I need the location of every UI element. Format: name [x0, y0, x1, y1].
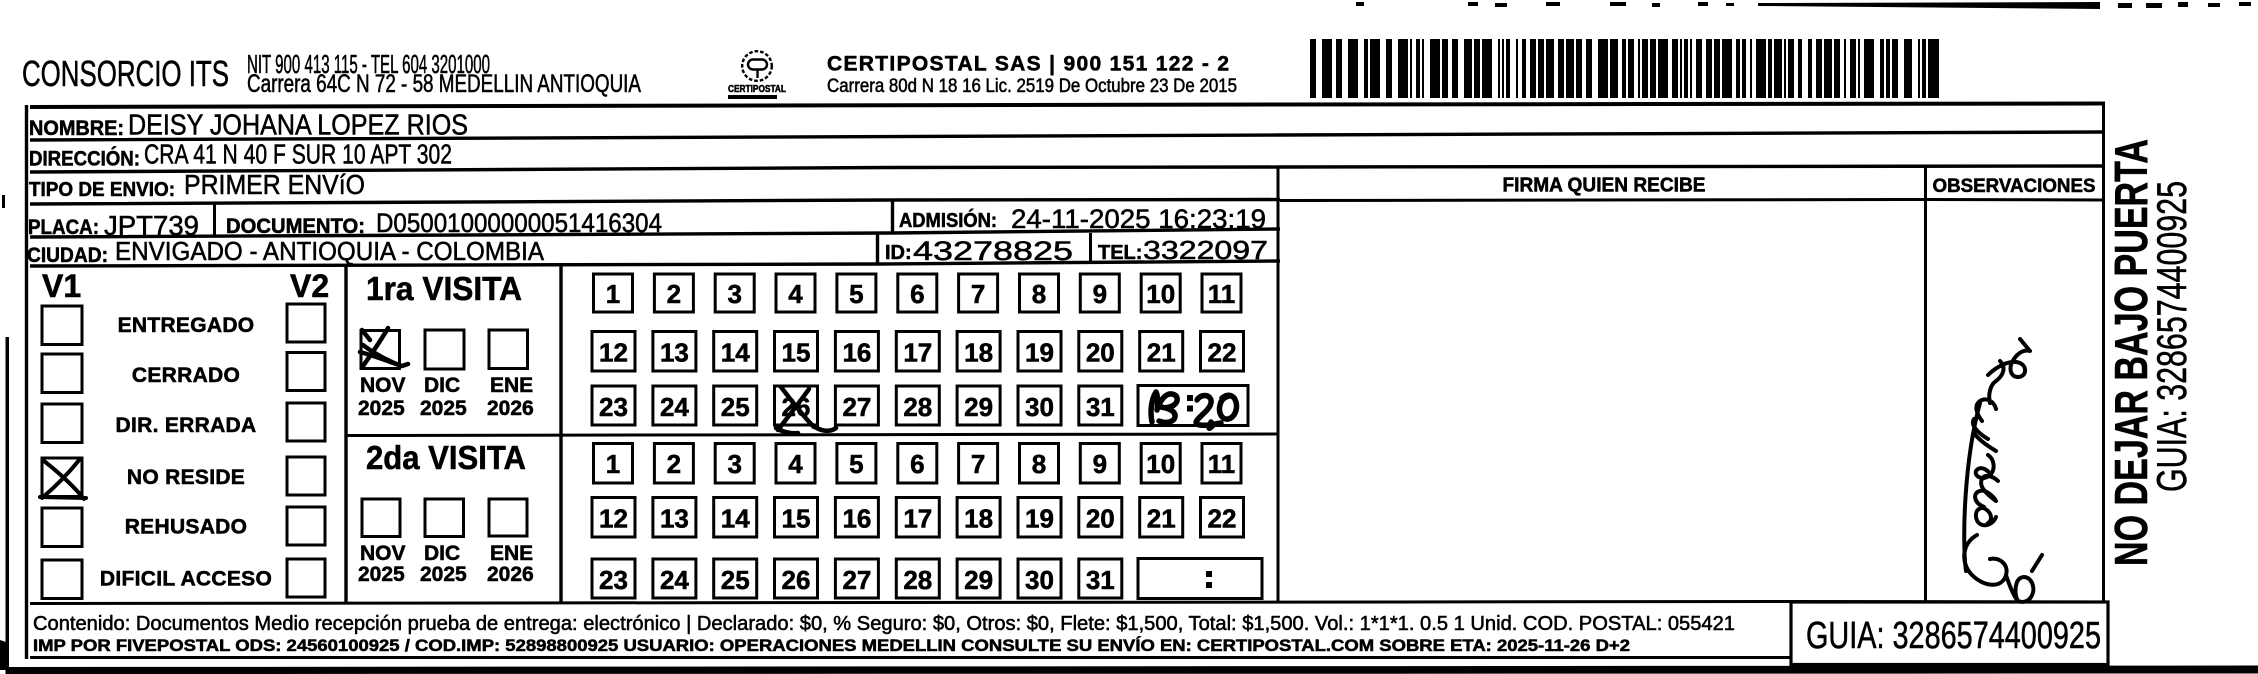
- svg-text:8: 8: [1032, 279, 1046, 309]
- svg-text:13: 13: [660, 338, 689, 368]
- svg-text:2025: 2025: [358, 397, 405, 420]
- svg-text:V1: V1: [42, 268, 81, 304]
- svg-text:ENE: ENE: [490, 374, 533, 397]
- svg-text:2026: 2026: [487, 397, 534, 420]
- svg-text:25: 25: [721, 565, 750, 595]
- svg-text:7: 7: [971, 449, 985, 479]
- svg-text:18: 18: [964, 504, 993, 534]
- svg-text:8: 8: [1032, 449, 1046, 479]
- svg-text:27: 27: [842, 392, 871, 422]
- svg-text:2025: 2025: [420, 563, 467, 586]
- svg-text:1: 1: [606, 279, 620, 309]
- svg-text:DIRECCIÓN:: DIRECCIÓN:: [29, 147, 140, 171]
- svg-text:18: 18: [964, 338, 993, 368]
- svg-text:DIR. ERRADA: DIR. ERRADA: [116, 414, 257, 437]
- svg-text:5: 5: [849, 279, 863, 309]
- svg-text:24: 24: [660, 392, 689, 422]
- svg-text:9: 9: [1093, 279, 1107, 309]
- svg-text:GUIA: 3286574400925: GUIA: 3286574400925: [1806, 615, 2101, 657]
- svg-text:21: 21: [1147, 338, 1176, 368]
- svg-text:PRIMER ENVíO: PRIMER ENVíO: [184, 169, 365, 200]
- svg-text:ENE: ENE: [490, 542, 533, 565]
- svg-text:REHUSADO: REHUSADO: [125, 516, 248, 539]
- svg-text:2025: 2025: [420, 397, 467, 420]
- svg-text:27: 27: [842, 565, 871, 595]
- svg-text:2: 2: [667, 279, 681, 309]
- svg-text:CERRADO: CERRADO: [132, 364, 240, 387]
- svg-text:14: 14: [721, 504, 750, 534]
- svg-text:13: 13: [660, 504, 689, 534]
- svg-text:3: 3: [727, 449, 741, 479]
- svg-text:20: 20: [1086, 338, 1115, 368]
- svg-text:ADMISIÓN:: ADMISIÓN:: [899, 208, 997, 232]
- svg-text:19: 19: [1025, 338, 1054, 368]
- svg-text:23: 23: [599, 392, 628, 422]
- svg-text:7: 7: [971, 279, 985, 309]
- svg-text:11: 11: [1208, 279, 1236, 309]
- svg-text:1: 1: [606, 449, 620, 479]
- svg-text:2025: 2025: [358, 563, 405, 586]
- svg-text:29: 29: [964, 392, 993, 422]
- svg-text:NO RESIDE: NO RESIDE: [127, 466, 245, 489]
- svg-text:24: 24: [660, 565, 689, 595]
- svg-text:9: 9: [1093, 449, 1107, 479]
- svg-text:4: 4: [788, 449, 803, 479]
- svg-text:10: 10: [1146, 279, 1175, 309]
- svg-text:21: 21: [1147, 504, 1176, 534]
- svg-text:17: 17: [903, 504, 932, 534]
- svg-text:26: 26: [782, 565, 811, 595]
- svg-text:CERTIPOSTAL SAS | 900 151 122: CERTIPOSTAL SAS | 900 151 122 - 2: [827, 53, 1229, 76]
- svg-text:24-11-2025 16:23:19: 24-11-2025 16:23:19: [1011, 204, 1266, 234]
- svg-text:11: 11: [1208, 449, 1236, 479]
- svg-text:DIC: DIC: [424, 374, 460, 397]
- svg-text:DIC: DIC: [424, 542, 460, 565]
- svg-text:16: 16: [842, 504, 871, 534]
- svg-text:2da VISITA: 2da VISITA: [366, 439, 526, 476]
- svg-text:30: 30: [1025, 565, 1054, 595]
- svg-text:22: 22: [1208, 504, 1237, 534]
- svg-text:30: 30: [1025, 392, 1054, 422]
- svg-text:43278825: 43278825: [913, 236, 1073, 266]
- svg-text:DOCUMENTO:: DOCUMENTO:: [226, 215, 365, 238]
- svg-text:CRA 41 N 40 F SUR 10 APT 302: CRA 41 N 40 F SUR 10 APT 302: [144, 139, 452, 170]
- svg-text:2: 2: [667, 449, 681, 479]
- svg-text:31: 31: [1086, 392, 1115, 422]
- svg-text:15: 15: [782, 338, 811, 368]
- svg-text:ID:: ID:: [885, 242, 912, 264]
- svg-text:3322097: 3322097: [1143, 235, 1268, 265]
- svg-text:GUIA: 3286574400925: GUIA: 3286574400925: [2148, 181, 2195, 492]
- svg-text:TIPO DE ENVIO:: TIPO DE ENVIO:: [29, 179, 175, 201]
- svg-text:NOMBRE:: NOMBRE:: [29, 117, 124, 140]
- svg-text:29: 29: [964, 565, 993, 595]
- svg-text:19: 19: [1025, 504, 1054, 534]
- svg-text:FIRMA QUIEN RECIBE: FIRMA QUIEN RECIBE: [1503, 175, 1706, 197]
- svg-text:CONSORCIO ITS: CONSORCIO ITS: [22, 53, 229, 94]
- svg-text:12: 12: [599, 504, 628, 534]
- svg-text:25: 25: [721, 392, 750, 422]
- svg-text:5: 5: [849, 449, 863, 479]
- svg-text:CERTIPOSTAL: CERTIPOSTAL: [728, 83, 786, 95]
- svg-text:2026: 2026: [487, 563, 534, 586]
- svg-text:28: 28: [903, 565, 932, 595]
- svg-text:1ra VISITA: 1ra VISITA: [366, 270, 522, 307]
- svg-text:15: 15: [782, 504, 811, 534]
- svg-text:CIUDAD:: CIUDAD:: [27, 244, 108, 267]
- svg-text:22: 22: [1208, 338, 1237, 368]
- svg-text:NOV: NOV: [360, 542, 406, 565]
- svg-text:14: 14: [721, 338, 750, 368]
- svg-text:31: 31: [1086, 565, 1115, 595]
- svg-text:DIFICIL ACCESO: DIFICIL ACCESO: [100, 568, 272, 591]
- svg-text:12: 12: [599, 338, 628, 368]
- svg-text:17: 17: [903, 338, 932, 368]
- svg-text:IMP POR FIVEPOSTAL ODS: 245601: IMP POR FIVEPOSTAL ODS: 24560100925 / CO…: [33, 636, 1630, 655]
- svg-text:ENVIGADO - ANTIOQUIA - COLOMBI: ENVIGADO - ANTIOQUIA - COLOMBIA: [115, 236, 545, 266]
- svg-text:Carrera 80d N 18 16 Lic. 2519: Carrera 80d N 18 16 Lic. 2519 De Octubre…: [827, 76, 1237, 97]
- svg-text:DEISY JOHANA LOPEZ RIOS: DEISY JOHANA LOPEZ RIOS: [128, 110, 468, 142]
- svg-text:6: 6: [910, 449, 924, 479]
- svg-text:6: 6: [910, 279, 924, 309]
- svg-text:28: 28: [903, 392, 932, 422]
- svg-text:PLACA:: PLACA:: [28, 216, 99, 239]
- svg-text:20: 20: [1086, 504, 1115, 534]
- svg-text:OBSERVACIONES: OBSERVACIONES: [1933, 176, 2096, 197]
- svg-text:4: 4: [788, 279, 803, 309]
- svg-text:Carrera 64C N 72 - 58 MEDELLIN: Carrera 64C N 72 - 58 MEDELLIN ANTIOQUIA: [247, 70, 641, 98]
- svg-text:ENTREGADO: ENTREGADO: [118, 314, 255, 337]
- svg-text:NOV: NOV: [360, 374, 406, 397]
- svg-text:D05001000000051416304: D05001000000051416304: [376, 208, 662, 238]
- svg-text:V2: V2: [290, 268, 329, 304]
- svg-text:10: 10: [1146, 449, 1175, 479]
- svg-text:Contenido: Documentos Medio re: Contenido: Documentos Medio recepción pr…: [33, 613, 1735, 635]
- svg-text:23: 23: [599, 565, 628, 595]
- svg-text:16: 16: [842, 338, 871, 368]
- svg-text:3: 3: [727, 279, 741, 309]
- svg-text:TEL:: TEL:: [1098, 242, 1142, 264]
